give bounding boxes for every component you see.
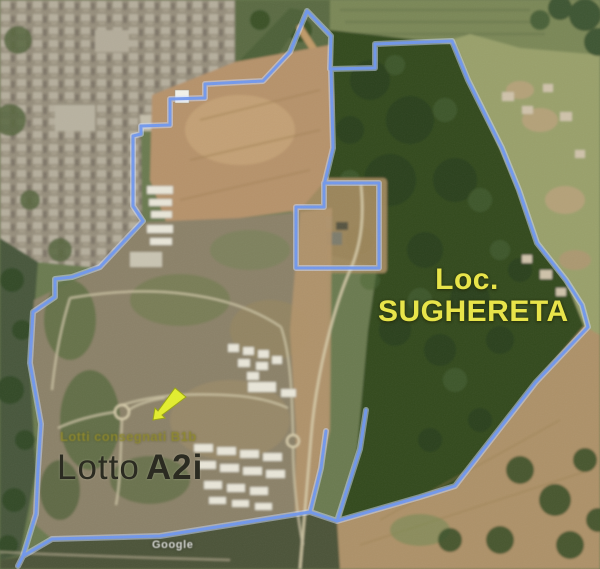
- locality-label: Loc. SUGHERETA: [378, 264, 556, 328]
- google-watermark: Google: [152, 539, 194, 551]
- lot-sublabel: Lotti consegnati B1b: [60, 429, 197, 444]
- lot-label-code: A2i: [146, 448, 203, 487]
- locality-line2: SUGHERETA: [378, 296, 556, 328]
- locality-line1: Loc.: [378, 264, 556, 296]
- satellite-map: Loc. SUGHERETA Lotti consegnati B1b Lott…: [0, 0, 600, 569]
- lot-label-prefix: Lotto: [57, 448, 140, 487]
- lot-label: LottoA2i: [57, 448, 203, 488]
